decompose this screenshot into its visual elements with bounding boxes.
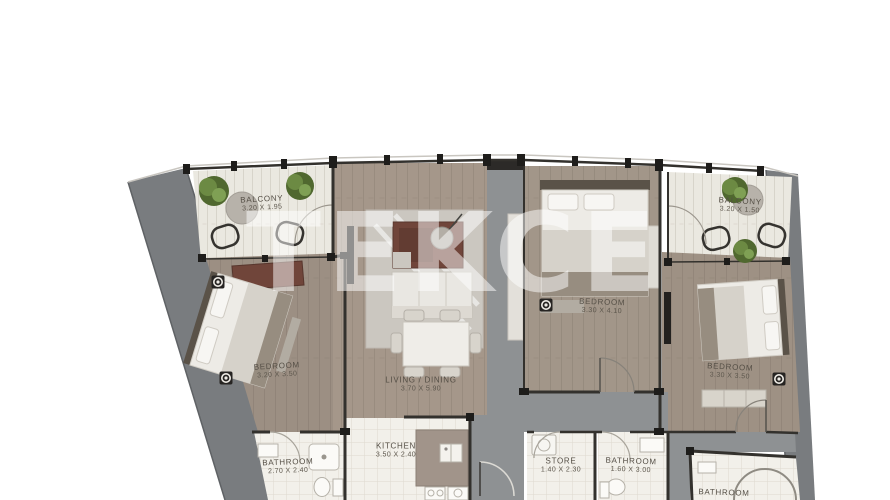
sink: [640, 438, 664, 452]
floor-lamp: [431, 227, 453, 249]
dresser: [702, 390, 766, 407]
wardrobe: [648, 226, 660, 288]
bed: [697, 279, 789, 361]
toilet: [607, 479, 625, 495]
wardrobe: [508, 214, 523, 340]
floor-plan-svg: [0, 0, 890, 500]
toilet: [314, 478, 330, 497]
bed: [540, 180, 650, 313]
floor-plan-page: TEKCE BALCONY 3.20 X 1.95 BALCONY 3.20 X…: [0, 0, 890, 500]
sink: [258, 444, 278, 457]
store-fixtures: [532, 432, 560, 458]
tv: [664, 292, 671, 344]
sink: [698, 462, 716, 473]
